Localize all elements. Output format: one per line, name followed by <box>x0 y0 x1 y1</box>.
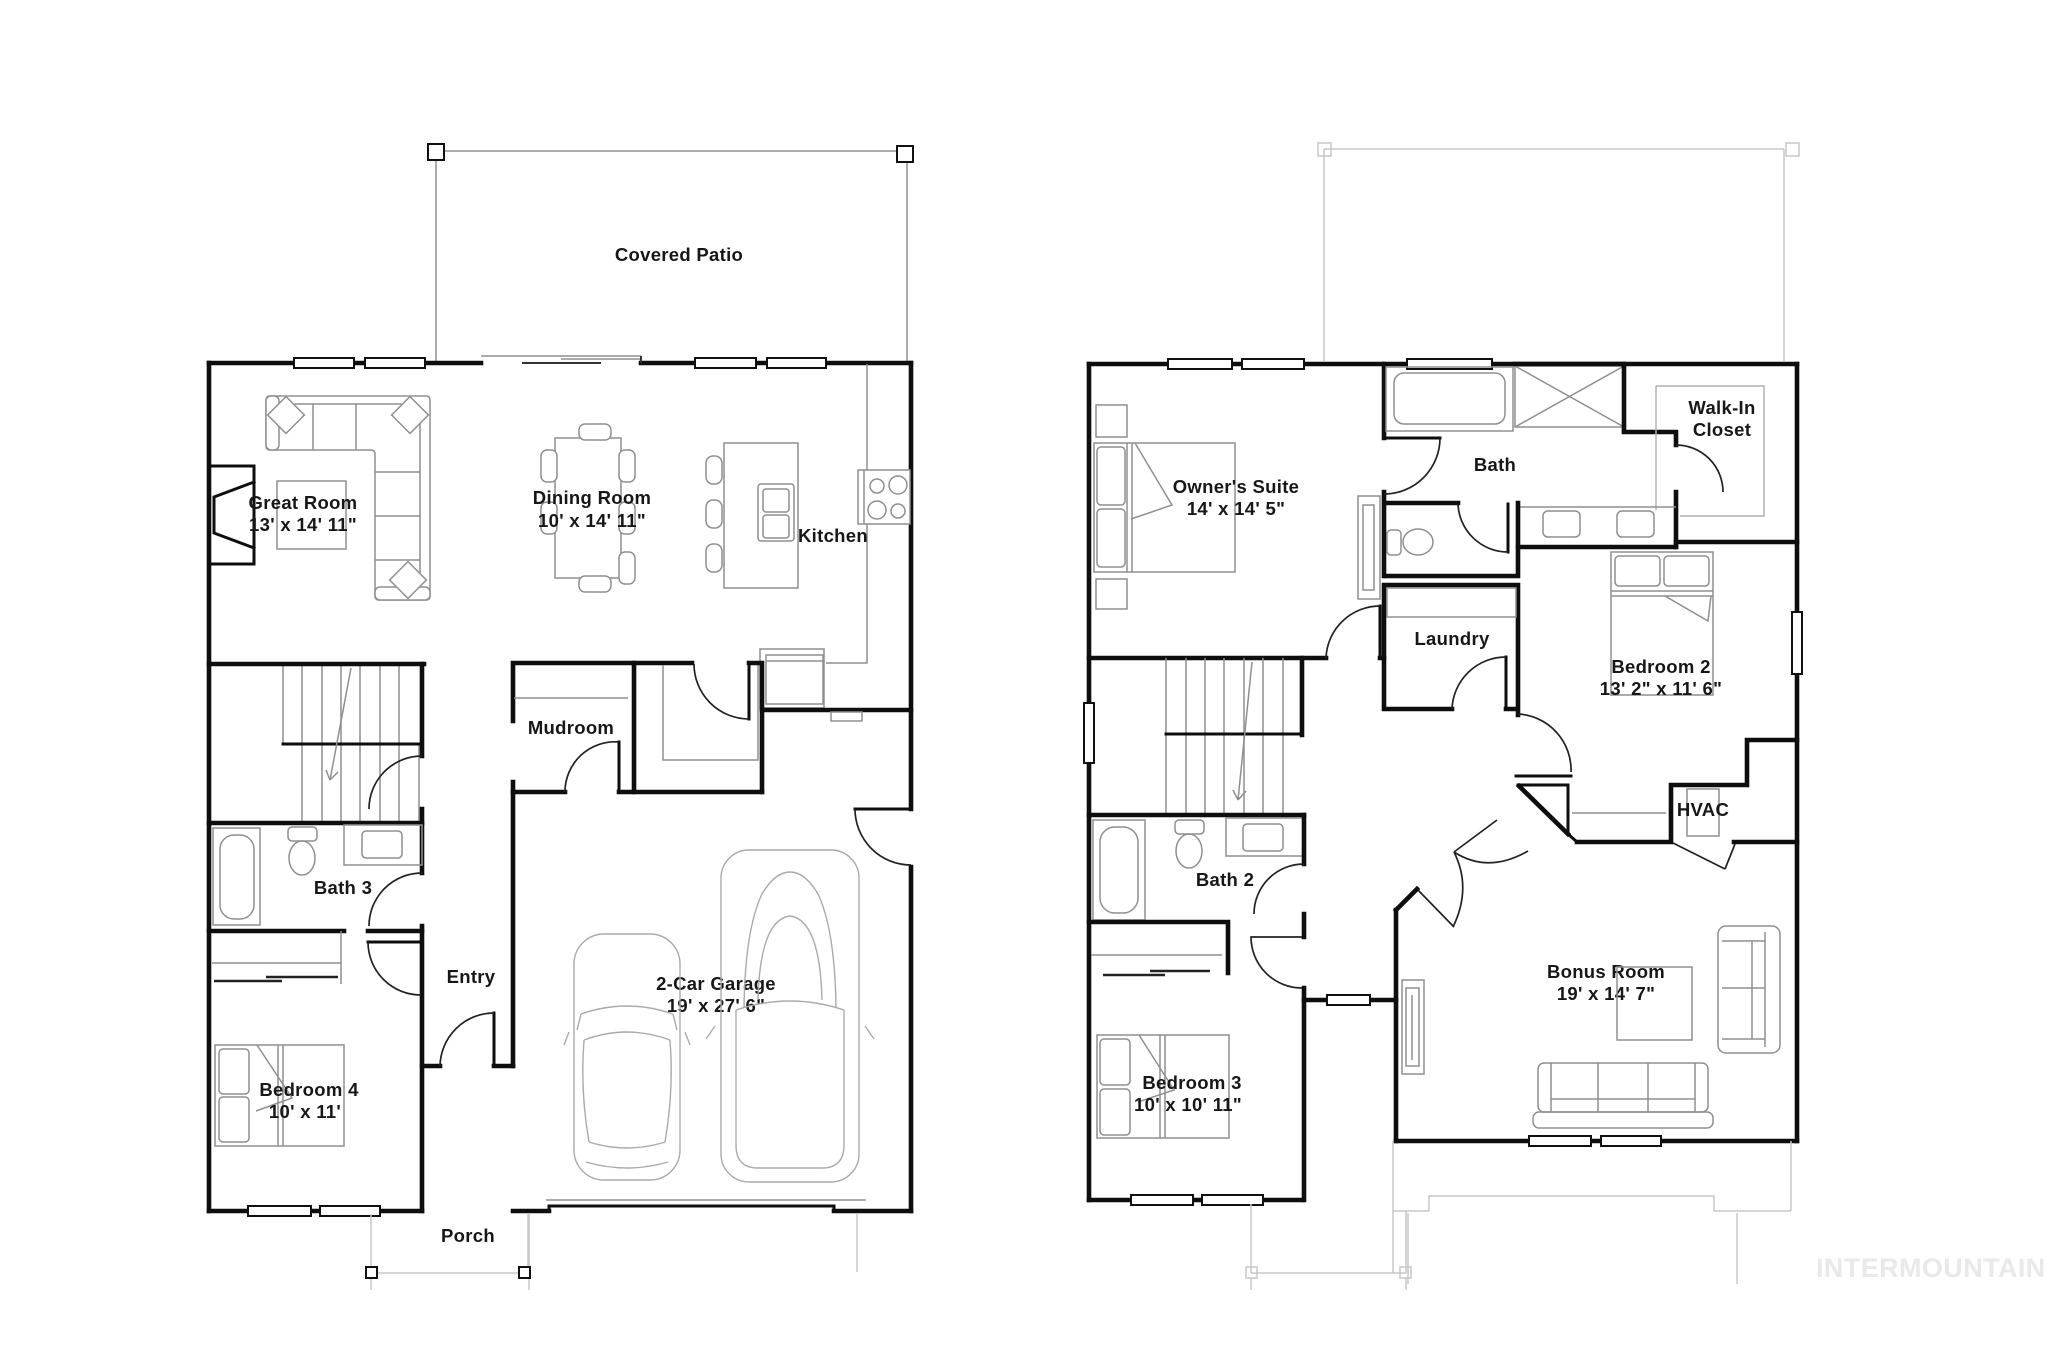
svg-text:Dining Room: Dining Room <box>533 487 651 508</box>
svg-text:Great Room: Great Room <box>249 492 358 513</box>
svg-text:Bedroom 3: Bedroom 3 <box>1142 1072 1241 1093</box>
svg-text:Walk-In: Walk-In <box>1688 397 1755 418</box>
svg-text:19' x 14' 7": 19' x 14' 7" <box>1557 983 1655 1004</box>
svg-text:Bedroom 2: Bedroom 2 <box>1611 656 1710 677</box>
svg-text:Kitchen: Kitchen <box>798 525 868 546</box>
svg-text:Bath 2: Bath 2 <box>1196 869 1254 890</box>
svg-text:Bath 3: Bath 3 <box>314 877 372 898</box>
svg-text:10' x 14' 11": 10' x 14' 11" <box>538 510 646 531</box>
svg-text:Entry: Entry <box>447 966 496 987</box>
svg-text:Porch: Porch <box>441 1225 495 1246</box>
svg-text:Mudroom: Mudroom <box>528 717 614 738</box>
svg-text:14' x 14' 5": 14' x 14' 5" <box>1187 498 1285 519</box>
svg-text:10' x 11': 10' x 11' <box>269 1101 341 1122</box>
svg-text:HVAC: HVAC <box>1677 799 1729 820</box>
svg-text:Laundry: Laundry <box>1414 628 1489 649</box>
svg-text:Bath: Bath <box>1474 454 1516 475</box>
svg-text:Bedroom 4: Bedroom 4 <box>259 1079 359 1100</box>
svg-text:INTERMOUNTAIN: INTERMOUNTAIN <box>1816 1253 2046 1283</box>
svg-text:13' 2" x 11' 6": 13' 2" x 11' 6" <box>1600 678 1722 699</box>
svg-text:13' x 14' 11": 13' x 14' 11" <box>249 514 357 535</box>
svg-text:Bonus Room: Bonus Room <box>1547 961 1665 982</box>
svg-text:Owner's Suite: Owner's Suite <box>1173 476 1300 497</box>
svg-text:10' x 10' 11": 10' x 10' 11" <box>1134 1094 1242 1115</box>
svg-text:Covered Patio: Covered Patio <box>615 244 743 265</box>
svg-text:Closet: Closet <box>1693 419 1751 440</box>
